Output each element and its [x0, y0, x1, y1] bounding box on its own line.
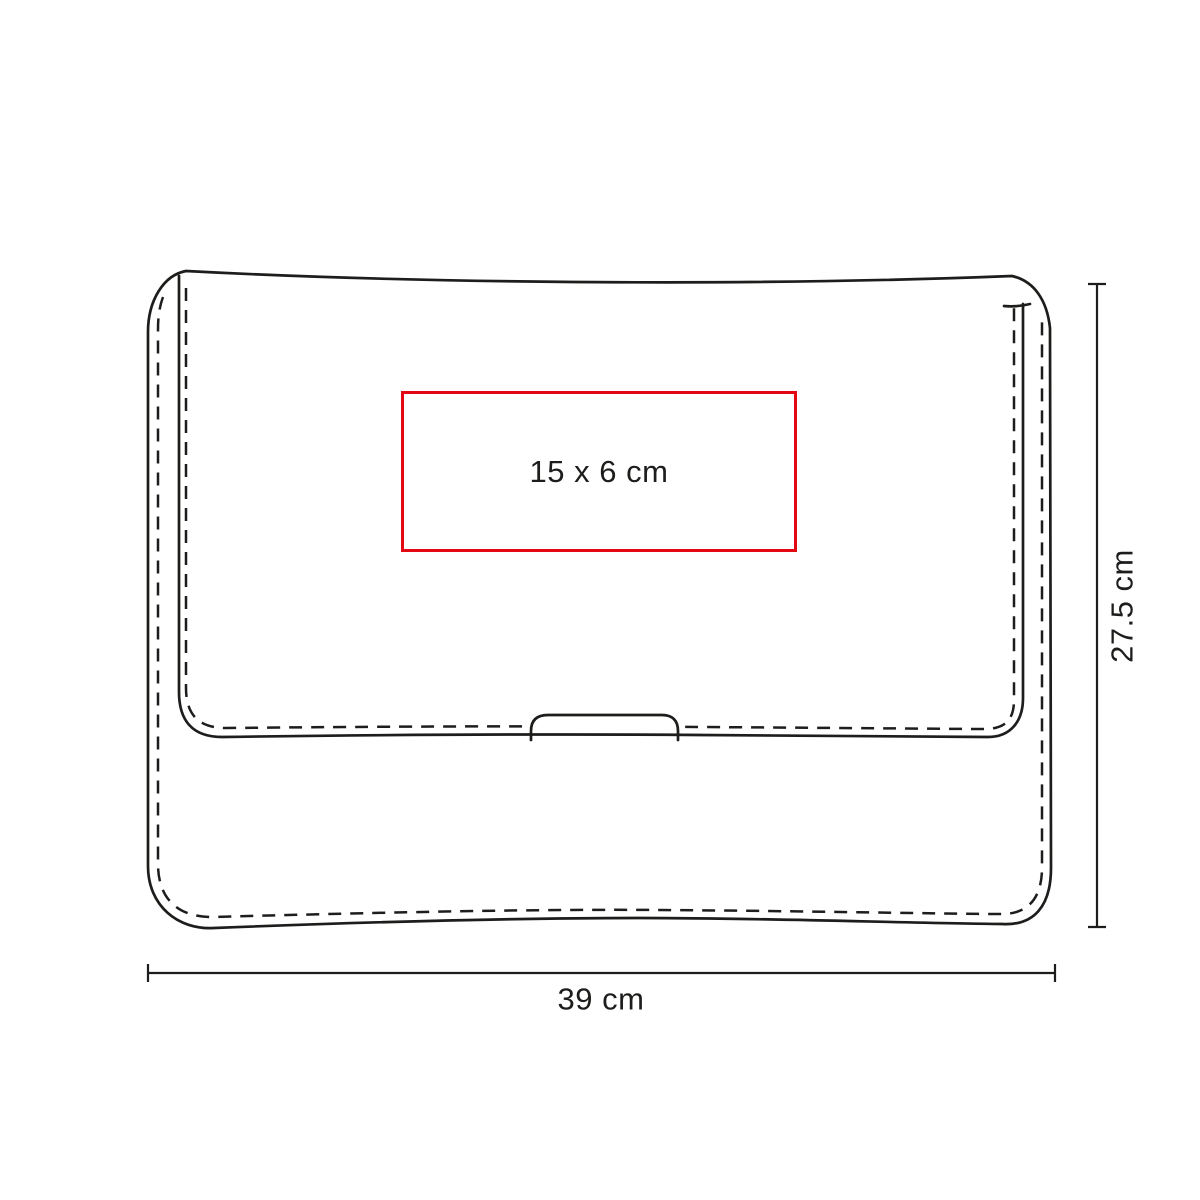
bag-body-outline	[148, 271, 1051, 928]
diagram-canvas: 15 x 6 cm 27.5 cm 39 cm	[0, 0, 1200, 1200]
width-dimension-label: 39 cm	[558, 984, 645, 1015]
height-dimension-line	[1088, 284, 1106, 927]
print-area-box: 15 x 6 cm	[401, 391, 797, 552]
clasp-tab	[531, 715, 678, 740]
height-dimension-label: 27.5 cm	[1107, 549, 1138, 663]
width-dimension-line	[148, 964, 1055, 982]
pouch-line-drawing	[0, 0, 1200, 1200]
print-area-size-label: 15 x 6 cm	[530, 454, 669, 490]
